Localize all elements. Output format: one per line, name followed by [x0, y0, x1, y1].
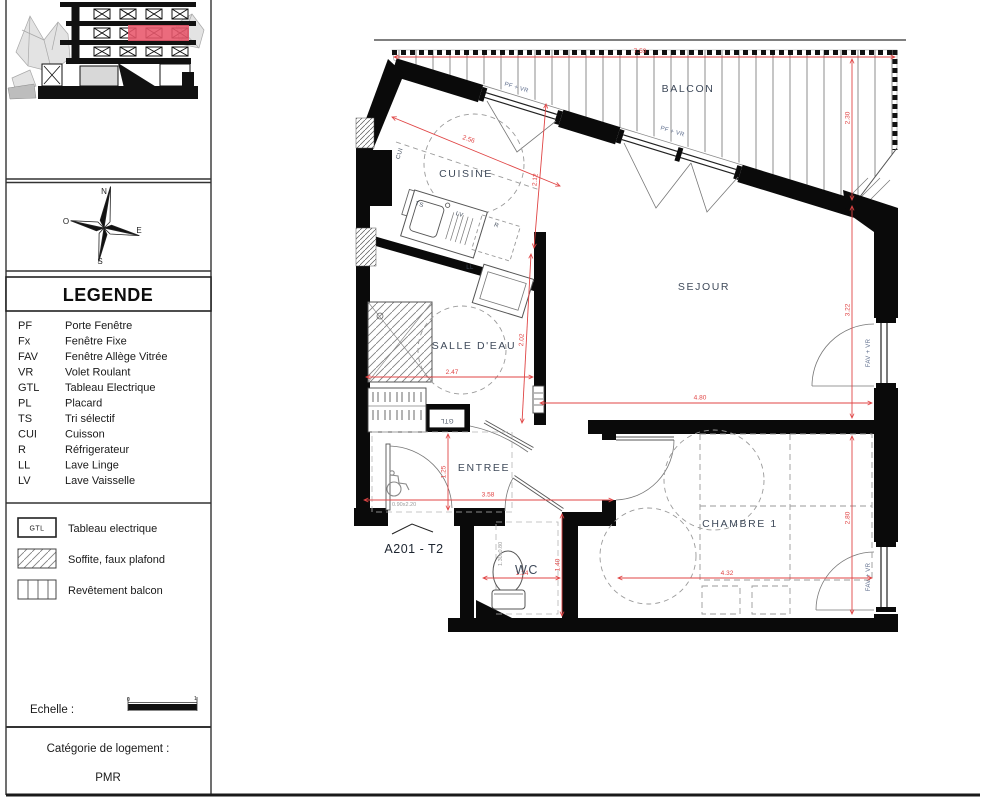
- legend-abbr: R: [18, 444, 26, 456]
- legend-abbr: VR: [18, 367, 33, 379]
- legend-label: Porte Fenêtre: [65, 320, 132, 332]
- room-label-balcon: BALCON: [662, 83, 715, 95]
- dim-chambre-depth: 2.80: [845, 511, 852, 524]
- dim-bath-depth: 2.02: [518, 333, 526, 346]
- legend-abbr: LL: [18, 460, 30, 472]
- compass-west-label: O: [63, 217, 69, 226]
- legend-label: Cuisson: [65, 429, 105, 441]
- room-label-sejour: SEJOUR: [678, 281, 730, 293]
- legend-label: Réfrigerateur: [65, 444, 130, 456]
- compass-east-label: E: [136, 226, 141, 235]
- counter-edge: [396, 142, 540, 190]
- legend-abbr: CUI: [18, 429, 37, 441]
- washer-label: LL: [466, 265, 474, 271]
- legend-label: Placard: [65, 398, 102, 410]
- sidebar-frame: [6, 0, 211, 795]
- cooktop-label: CUI: [395, 147, 404, 160]
- legend-abbr: Fx: [18, 336, 31, 348]
- room-label-chambre: CHAMBRE 1: [702, 518, 778, 530]
- sidebar: N O E S LEGENDE PF Porte Fenêtre Fx Fenê…: [6, 0, 211, 795]
- compass-rose: N O E S: [63, 181, 146, 267]
- gtl-symbol-key: GTL: [29, 526, 44, 533]
- window-label: FAV + VR: [866, 562, 872, 591]
- room-label-entree: ENTREE: [458, 462, 510, 474]
- floor-plan: PF + VR PF + VR FAV + VR: [354, 40, 906, 632]
- dim-entree-width: 3.58: [482, 492, 495, 499]
- dim-bath-width: 2.47: [446, 369, 459, 376]
- towel-radiator: [533, 386, 544, 413]
- category-label: Catégorie de logement :: [47, 743, 170, 755]
- wc-door-leaf: [513, 476, 564, 512]
- toilet: [492, 551, 525, 609]
- dim-kitchen-depth: 2.12: [531, 173, 539, 187]
- unit-tag: A201 - T2: [384, 524, 443, 556]
- dim-entree-depth: 1.25: [441, 465, 448, 478]
- wall-hatch: [356, 228, 376, 266]
- dim-sejour-width: 4.80: [694, 395, 707, 402]
- legend-panel: LEGENDE PF Porte Fenêtre Fx Fenêtre Fixe…: [6, 277, 211, 599]
- balcony-symbol-label: Revêtement balcon: [68, 585, 163, 597]
- scale-tick-end: 1: [194, 696, 197, 702]
- legend-label: Tri sélectif: [65, 413, 116, 425]
- window-sejour-east: FAV + VR: [812, 318, 898, 388]
- floor-grille: [368, 388, 426, 432]
- gtl-symbol-label: Tableau electrique: [68, 523, 157, 535]
- room-label-cuisine: CUISINE: [439, 168, 493, 180]
- compass-north-label: N: [101, 187, 107, 196]
- legend-symbols: GTL Tableau electrique Soffite, faux pla…: [18, 518, 165, 599]
- category-block: Catégorie de logement : PMR: [47, 743, 170, 784]
- balcony-finish-icon: [18, 580, 56, 599]
- soffit-hatch-icon: [18, 549, 56, 568]
- legend-label: Lave Linge: [65, 460, 119, 472]
- legend-label: Lave Vaisselle: [65, 475, 135, 487]
- legend-abbr: PL: [18, 398, 31, 410]
- unit-caret: [392, 524, 433, 534]
- category-value: PMR: [95, 772, 121, 784]
- legend-label: Volet Roulant: [65, 367, 130, 379]
- highlighted-unit-marker: [128, 25, 189, 41]
- balcony-area: [392, 50, 897, 204]
- room-label-salle-deau: SALLE D'EAU: [432, 340, 516, 352]
- legend-label: Tableau Electrique: [65, 382, 156, 394]
- wall-hatch: [356, 118, 374, 148]
- soffit-symbol-label: Soffite, faux plafond: [68, 554, 165, 566]
- entrance-door-size: 0.90x2.20: [392, 502, 416, 508]
- legend-title: LEGENDE: [63, 285, 154, 305]
- legend-abbr: LV: [18, 475, 31, 487]
- washing-machine: [472, 264, 533, 317]
- dim-chambre-width: 4.32: [721, 570, 734, 577]
- scale-tick-start: 0: [127, 697, 130, 703]
- scale-block: Echelle : 0 1: [30, 696, 197, 716]
- compass-south-label: S: [97, 257, 102, 266]
- dim-sejour-depth: 3.22: [845, 303, 852, 316]
- legend-items: PF Porte Fenêtre Fx Fenêtre Fixe FAV Fen…: [18, 320, 168, 487]
- dim-wc-depth: 1.40: [555, 558, 562, 571]
- gtl-label: GTL: [440, 417, 453, 423]
- dim-balcony-depth: 2.30: [845, 111, 852, 124]
- fridge-label: R: [493, 222, 500, 229]
- scale-label: Echelle :: [30, 704, 74, 716]
- room-label-wc: WC: [515, 563, 539, 577]
- dim-kitchen-diag: 2.56: [461, 134, 476, 145]
- unit-label: A201 - T2: [384, 542, 443, 556]
- scale-bar: 0 1: [127, 696, 197, 711]
- wc-door-size: 1.30x0.80: [498, 542, 504, 566]
- building-section-thumbnail: [8, 2, 204, 99]
- window-swing-arc: [812, 324, 874, 386]
- legend-abbr: TS: [18, 413, 32, 425]
- window-label: FAV + VR: [866, 338, 872, 367]
- bath-door-leaf: [484, 421, 534, 451]
- legend-label: Fenêtre Fixe: [65, 336, 127, 348]
- floor-plan-sheet: N O E S LEGENDE PF Porte Fenêtre Fx Fenê…: [0, 0, 982, 800]
- legend-abbr: GTL: [18, 382, 39, 394]
- legend-label: Fenêtre Allège Vitrée: [65, 351, 168, 363]
- turning-circle: [664, 430, 764, 530]
- chambre-door-leaf: [616, 437, 674, 440]
- legend-abbr: PF: [18, 320, 32, 332]
- dim-balcony-width: 7.59: [634, 48, 647, 55]
- legend-abbr: FAV: [18, 351, 39, 363]
